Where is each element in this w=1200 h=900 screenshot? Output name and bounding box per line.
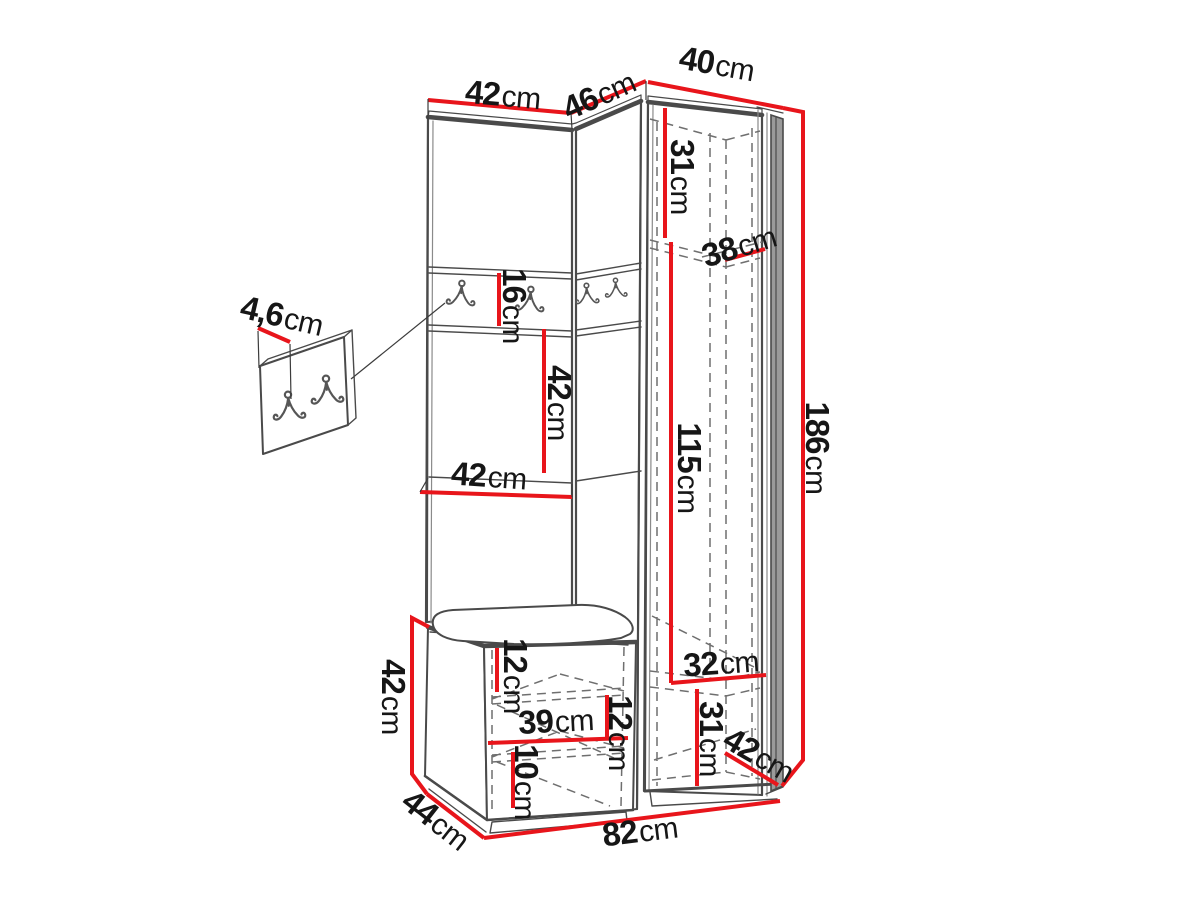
dim-label-total-height: 186cm (799, 401, 836, 494)
furniture-dimension-diagram: 42cm 46cm 40cm 31cm 38cm 16cm 42cm 42cm … (0, 0, 1200, 900)
dim-label-hook-panel-thickness: 4,6cm (237, 288, 327, 343)
bench-side-face (425, 627, 487, 820)
dim-label-lower-shelf-width: 32cm (682, 641, 760, 683)
dim-label-bench-height: 42cm (375, 659, 412, 735)
dim-label-hanging-height: 115cm (671, 422, 708, 513)
dim-label-upper-shelf-height: 31cm (664, 139, 701, 215)
dim-label-bench-bottom-gap: 10cm (508, 744, 545, 820)
detail-panel-face (260, 337, 348, 454)
wardrobe-open-door (771, 115, 783, 791)
dim-label-top-width-left: 42cm (464, 73, 543, 116)
dim-label-hook-strip-height: 16cm (496, 268, 533, 344)
dimension-drawing-svg: 42cm 46cm 40cm 31cm 38cm 16cm 42cm 42cm … (0, 0, 1200, 900)
dim-label-panel-mid-height: 42cm (541, 365, 578, 441)
dim-label-top-width-right: 40cm (677, 39, 758, 89)
dim-label-bench-inner-width: 39cm (517, 700, 595, 741)
dim-label-bench-inner-gap: 12cm (602, 695, 639, 771)
dim-label-total-width: 82cm (600, 808, 680, 854)
